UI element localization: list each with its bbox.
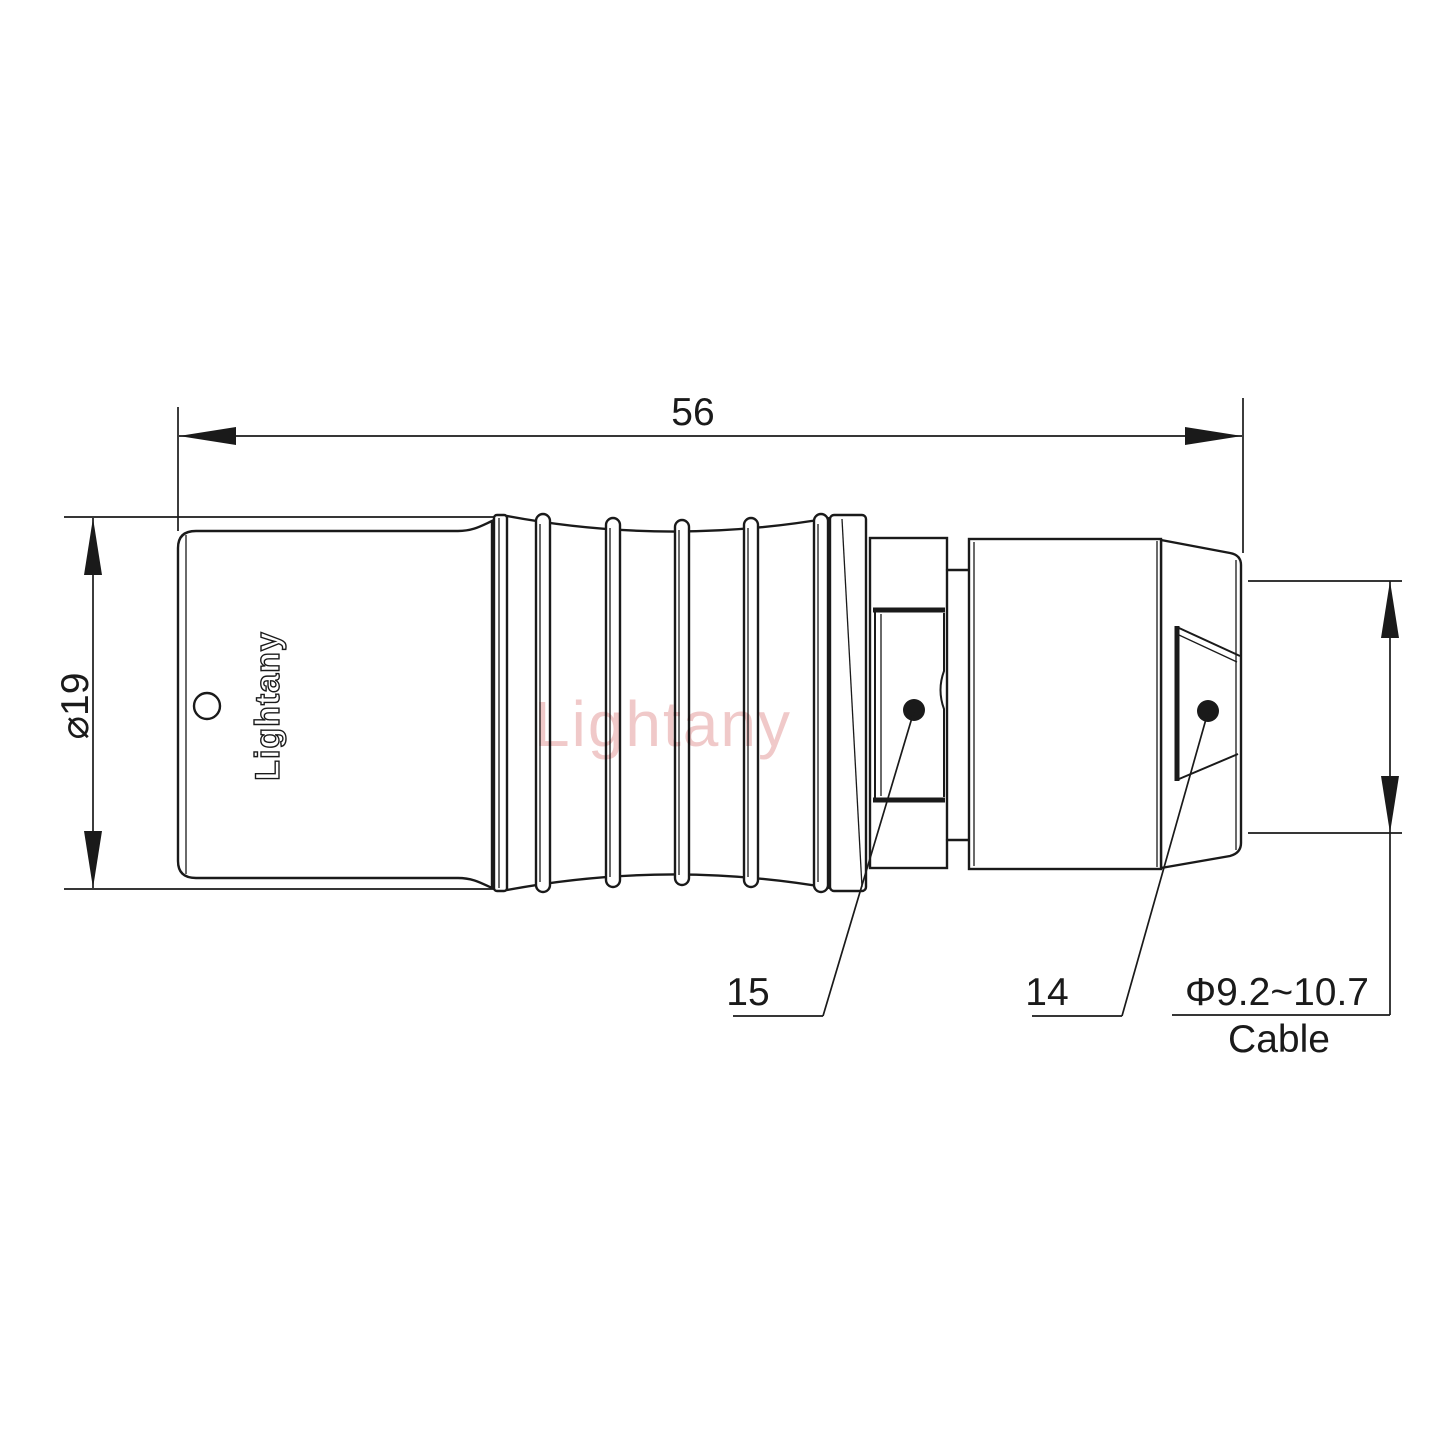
cap-flange xyxy=(494,515,507,891)
front-cap-outline xyxy=(178,521,492,888)
leader-dot-icon xyxy=(1197,700,1219,722)
overall-length-value: 56 xyxy=(671,391,714,434)
arrowhead-down-icon xyxy=(1381,776,1399,833)
arrowhead-up-icon xyxy=(84,518,102,575)
grip-top-contour xyxy=(507,516,830,532)
grip-collar xyxy=(830,515,866,891)
dimension-overall-length: 56 xyxy=(178,391,1243,553)
arrowhead-up-icon xyxy=(1381,581,1399,638)
front-cap: Lightany xyxy=(178,521,492,888)
cable-range-value: Φ9.2~10.7 xyxy=(1185,971,1369,1014)
part-15-label: 15 xyxy=(726,971,769,1014)
neck xyxy=(947,570,970,840)
nut-body-outline xyxy=(969,539,1161,869)
watermark-text: Lightany xyxy=(534,688,792,760)
arrowhead-right-icon xyxy=(1185,427,1242,445)
engraved-brand-text: Lightany xyxy=(249,631,287,781)
part-14-label: 14 xyxy=(1025,971,1068,1014)
grip-bottom-contour xyxy=(507,874,830,890)
cable-label: Cable xyxy=(1228,1018,1330,1061)
arrowhead-down-icon xyxy=(84,831,102,888)
body-diameter-value: ⌀19 xyxy=(54,673,97,740)
grip-rib xyxy=(814,514,828,892)
arrowhead-left-icon xyxy=(179,427,236,445)
connector-technical-drawing: 56 ⌀19 Lightany xyxy=(0,0,1440,1440)
drawing-canvas: 56 ⌀19 Lightany xyxy=(0,0,1440,1440)
leader-dot-icon xyxy=(903,699,925,721)
